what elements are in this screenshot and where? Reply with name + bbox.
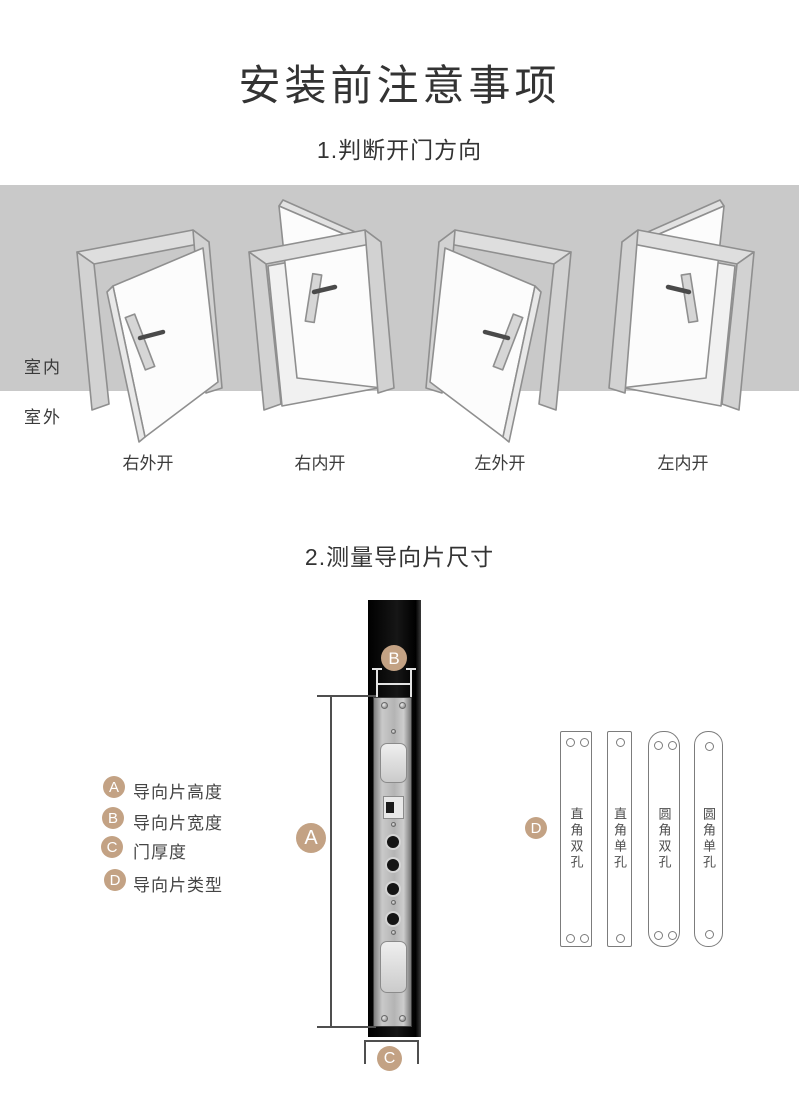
screw-icon (391, 930, 396, 935)
deadlatch-block (383, 796, 404, 819)
legend-label-d: 导向片类型 (133, 871, 223, 896)
legend-marker-c: C (101, 836, 123, 858)
door-label-left-outward: 左外开 (445, 449, 555, 474)
legend-marker-a: A (103, 776, 125, 798)
door-cell-right-inward (235, 190, 405, 448)
spindle-hole (385, 857, 401, 873)
page-title: 安装前注意事项 (0, 52, 799, 113)
door-panel (279, 200, 382, 388)
guide-plate-square-single: 直角单孔 (607, 731, 632, 947)
dimension-c-cap (364, 1040, 366, 1064)
screw-icon (399, 1015, 406, 1022)
door-panel (621, 200, 724, 388)
legend-label-b: 导向片宽度 (133, 809, 223, 834)
marker-d: D (525, 817, 547, 839)
legend-label-c: 门厚度 (133, 838, 187, 863)
plate-label: 直角单孔 (608, 732, 631, 946)
dimension-c-line (364, 1040, 419, 1042)
door-cell-left-outward (415, 190, 585, 448)
door-cell-right-outward (63, 190, 233, 448)
guide-plate-square-double: 直角双孔 (560, 731, 592, 947)
marker-c: C (377, 1046, 402, 1071)
dimension-b-cap (406, 668, 416, 670)
screw-icon (399, 702, 406, 709)
marker-b: B (381, 645, 407, 671)
door-label-right-outward: 右外开 (93, 449, 203, 474)
screw-icon (391, 822, 396, 827)
spindle-hole (385, 834, 401, 850)
dimension-a-cap-bottom (317, 1026, 376, 1028)
door-illustration-right-outward (63, 190, 233, 448)
guide-plate-round-double: 圆角双孔 (648, 731, 680, 947)
screw-icon (391, 729, 396, 734)
door-label-left-inward: 左内开 (628, 449, 738, 474)
plate-label: 直角双孔 (561, 732, 591, 946)
deadbolt (380, 941, 407, 993)
door-cell-left-inward (598, 190, 768, 448)
dimension-b-connector (376, 683, 411, 685)
dimension-b-cap (372, 668, 382, 670)
screw-icon (381, 702, 388, 709)
door-illustration-left-inward (598, 190, 768, 448)
plate-label: 圆角双孔 (649, 732, 679, 946)
latch-bolt (380, 743, 407, 783)
door-label-right-inward: 右内开 (265, 449, 375, 474)
dimension-a-cap-top (317, 695, 376, 697)
dimension-c-cap (417, 1040, 419, 1064)
door-panel (430, 248, 541, 442)
screw-icon (391, 900, 396, 905)
section1-heading: 1.判断开门方向 (0, 131, 799, 165)
guide-plate-round-single: 圆角单孔 (694, 731, 723, 947)
cylinder-hole (385, 911, 401, 927)
marker-a: A (296, 823, 326, 853)
legend-label-a: 导向片高度 (133, 778, 223, 803)
deadlatch-slot (386, 802, 394, 813)
indoor-label: 室内 (24, 353, 62, 378)
dimension-a-line (330, 696, 332, 1028)
screw-icon (381, 1015, 388, 1022)
plate-label: 圆角单孔 (695, 732, 722, 946)
outdoor-label: 室外 (24, 403, 62, 428)
door-illustration-left-outward (415, 190, 585, 448)
door-panel (107, 248, 218, 442)
legend-marker-d: D (104, 869, 126, 891)
instruction-page: 安装前注意事项 1.判断开门方向 (0, 0, 799, 1101)
lock-faceplate (373, 697, 412, 1027)
legend-marker-b: B (102, 807, 124, 829)
door-illustration-right-inward (235, 190, 405, 448)
section2-heading: 2.测量导向片尺寸 (0, 538, 799, 572)
spindle-hole (385, 881, 401, 897)
